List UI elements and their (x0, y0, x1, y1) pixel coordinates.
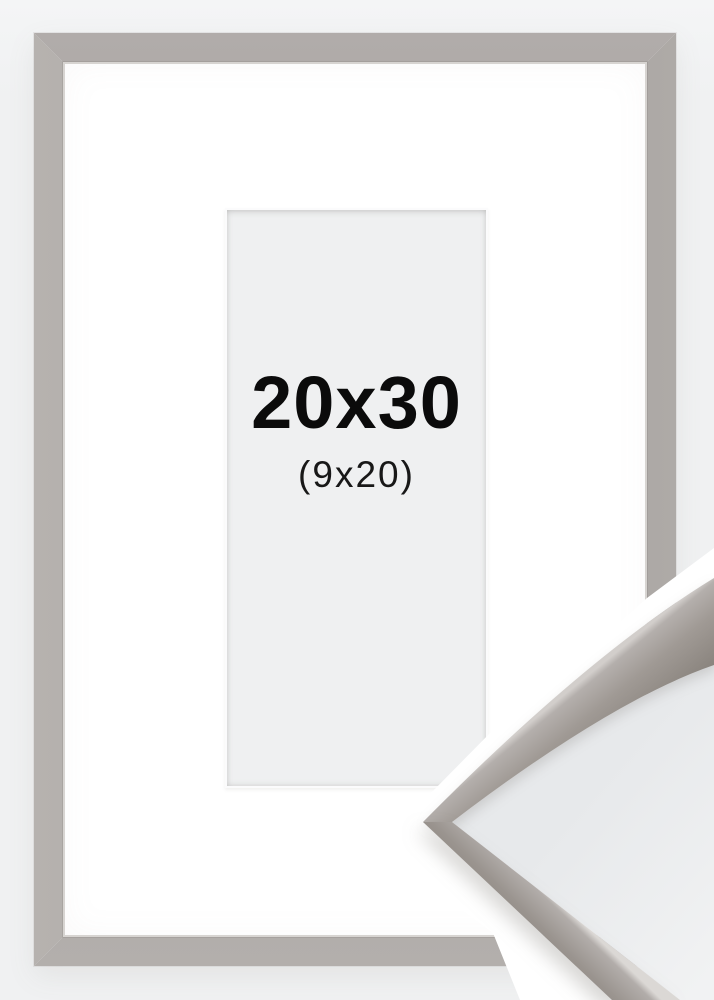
picture-frame: 20x30 (9x20) (34, 33, 676, 966)
mat-passepartout: 20x30 (9x20) (65, 64, 645, 935)
product-photo: 20x30 (9x20) (0, 0, 714, 1000)
inner-size-label: (9x20) (298, 456, 415, 493)
mat-aperture: 20x30 (9x20) (225, 208, 488, 788)
size-label: 20x30 (251, 366, 462, 440)
